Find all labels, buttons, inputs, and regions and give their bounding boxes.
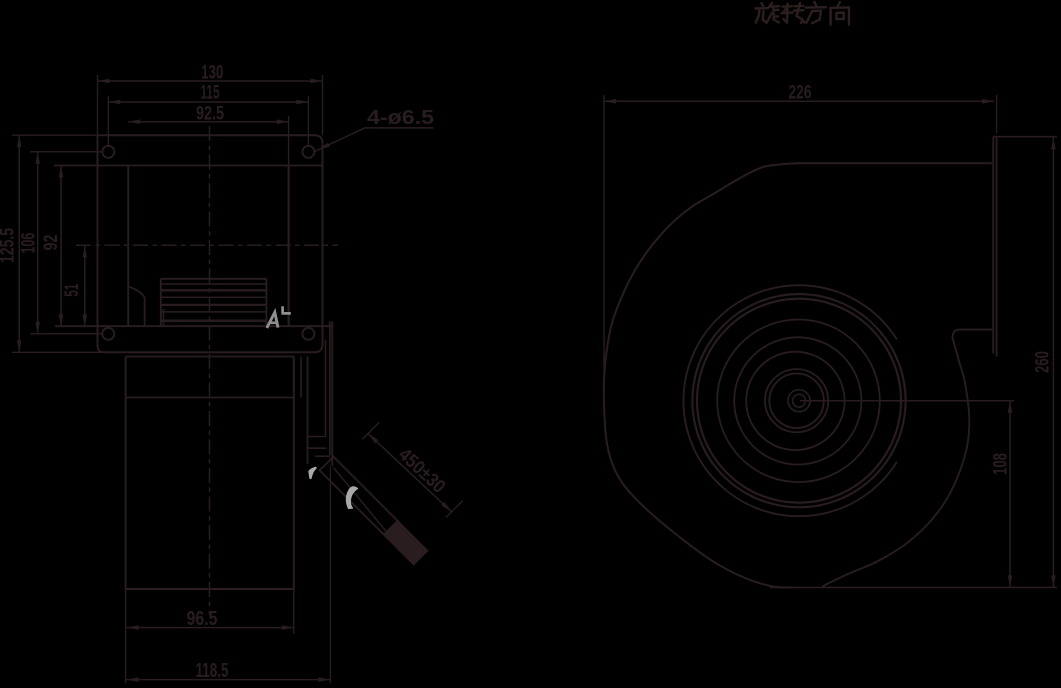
svg-text:4-ø6.5: 4-ø6.5 bbox=[367, 107, 434, 129]
svg-text:108: 108 bbox=[991, 453, 1012, 475]
svg-text:130: 130 bbox=[201, 63, 223, 84]
svg-text:260: 260 bbox=[1033, 351, 1054, 373]
svg-text:51: 51 bbox=[62, 283, 83, 296]
svg-text:125.5: 125.5 bbox=[0, 228, 19, 263]
svg-text:106: 106 bbox=[19, 233, 40, 254]
svg-text:118.5: 118.5 bbox=[196, 660, 229, 682]
svg-text:96.5: 96.5 bbox=[187, 608, 218, 630]
svg-text:92.5: 92.5 bbox=[196, 104, 224, 125]
svg-text:226: 226 bbox=[789, 82, 812, 103]
svg-text:115: 115 bbox=[201, 83, 220, 104]
svg-text:92: 92 bbox=[41, 235, 62, 251]
